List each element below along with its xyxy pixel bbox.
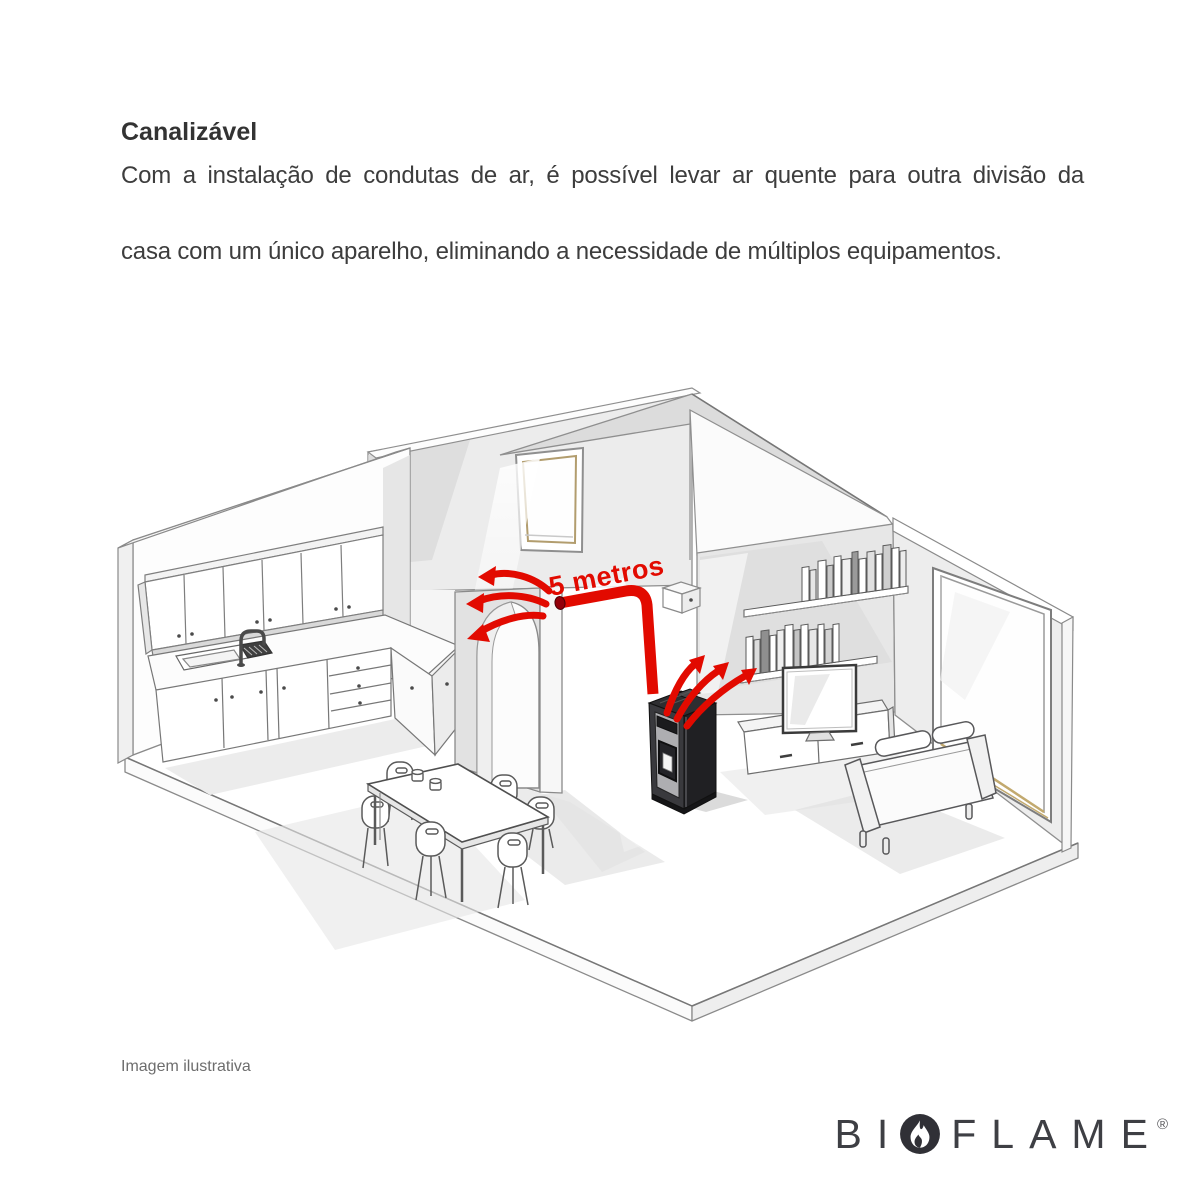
brand-logo: BI FLAME ® <box>834 1112 1168 1156</box>
tv <box>783 665 856 741</box>
flame-icon <box>899 1113 941 1155</box>
illustration-caption: Imagem ilustrativa <box>121 1058 251 1076</box>
registered-mark: ® <box>1157 1116 1168 1133</box>
tv-stand <box>806 732 834 741</box>
logo-text-suffix: FLAME <box>951 1112 1163 1156</box>
wall-cabinet <box>663 582 700 613</box>
page: Canalizável Com a instalação de condutas… <box>0 0 1200 1200</box>
logo-text-prefix: BI <box>834 1112 903 1156</box>
house-illustration: 5 metros <box>0 0 1200 1200</box>
